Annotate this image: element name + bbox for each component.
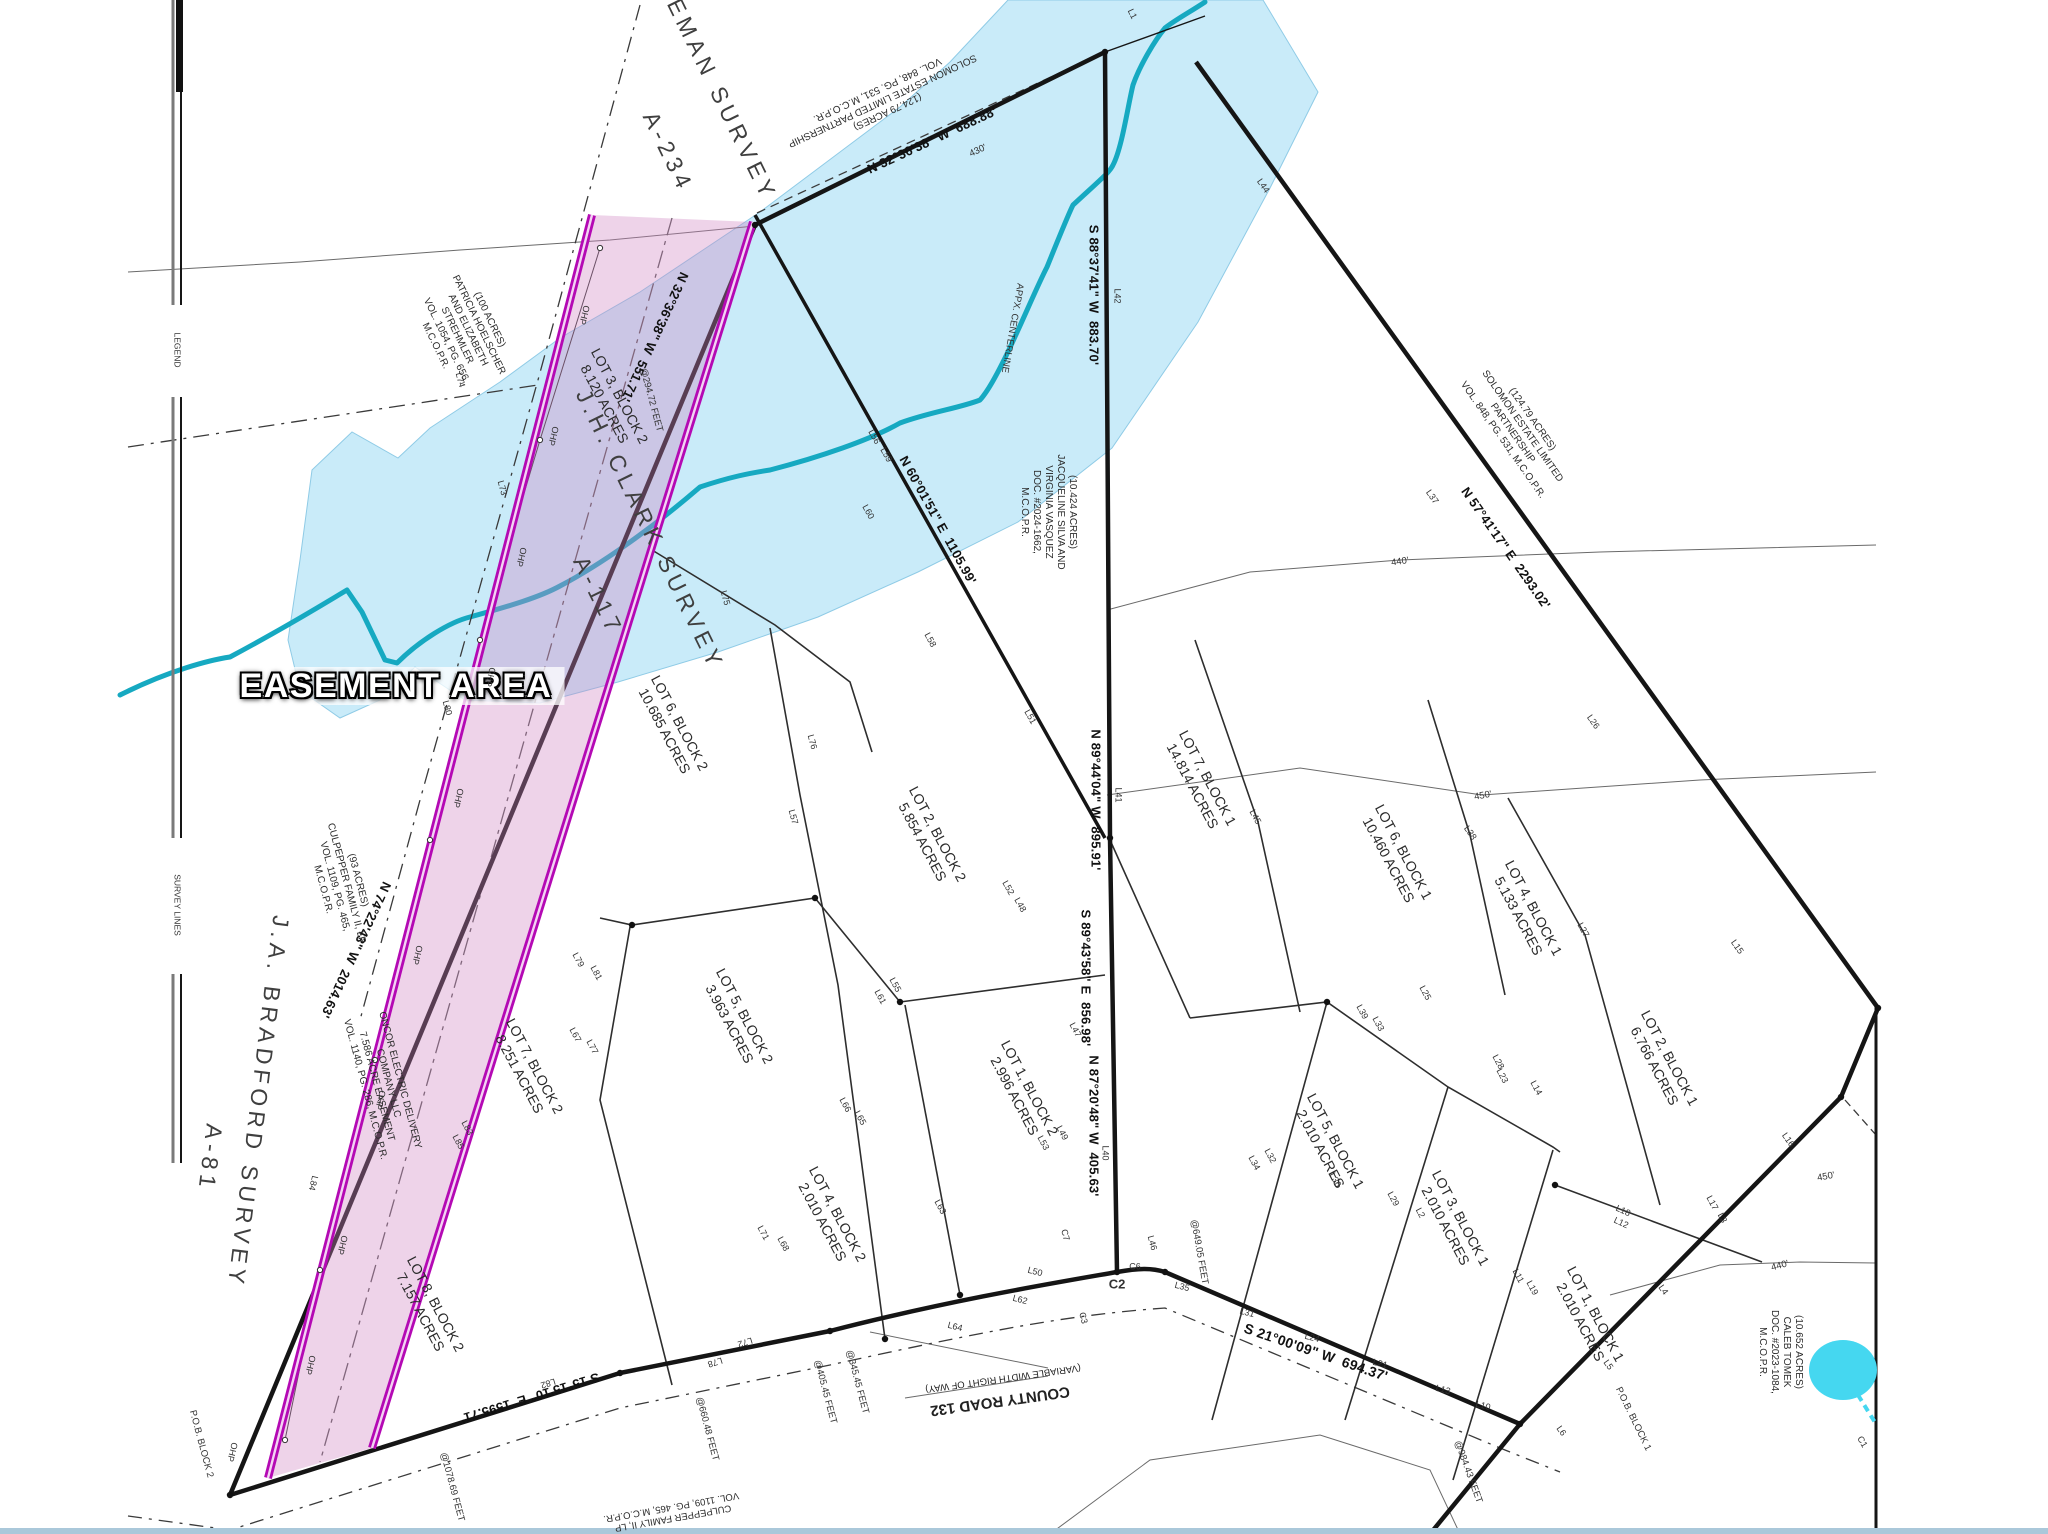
line-label: L34 bbox=[1246, 1154, 1261, 1171]
lot-label: LOT 6, BLOCK 110.460 ACRES bbox=[1356, 802, 1435, 911]
feet-label: @660.48 FEET bbox=[694, 1396, 720, 1462]
line-label: L85 bbox=[450, 1133, 465, 1150]
line-label: L19 bbox=[1524, 1279, 1539, 1296]
ohp-label: OHP bbox=[335, 1234, 348, 1255]
lot-label: LOT 7, BLOCK 28.251 ACRES bbox=[487, 1016, 566, 1125]
feet-label: @649.05 FEET bbox=[1189, 1219, 1210, 1285]
owner-label-line: M.C.O.P.R. bbox=[1018, 454, 1030, 569]
line-label: L23 bbox=[1494, 1067, 1509, 1084]
line-label: C3 bbox=[1077, 1311, 1089, 1324]
survey-plat-map: EASEMENT AREALEMAN SURVEYA-234J.H. CLARK… bbox=[0, 0, 2048, 1534]
line-label: L76 bbox=[806, 734, 819, 751]
contour-label: 430' bbox=[968, 143, 988, 159]
owner-label: (124.79 ACRES)SOLOMON ESTATE LIMITED PAR… bbox=[781, 40, 983, 160]
owner-label: (10.652 ACRES)CALEB TOMEKDOC. #2023-1084… bbox=[1756, 1310, 1804, 1394]
contour-label: 440' bbox=[1391, 556, 1410, 568]
line-label: L56 bbox=[866, 428, 881, 446]
line-label: L44 bbox=[1255, 177, 1271, 194]
owner-label: (124.79 ACRES)SOLOMON ESTATE LIMITEDPART… bbox=[1457, 359, 1577, 501]
lot-label: LOT 4, BLOCK 15.133 ACRES bbox=[1486, 858, 1565, 967]
bearing-label: S 21°00'09" W 694.37' bbox=[1242, 1321, 1389, 1383]
line-label: L81 bbox=[588, 964, 603, 981]
survey-name-clark: J.H. CLARK SURVEY bbox=[572, 386, 728, 674]
line-label: L37 bbox=[1424, 488, 1440, 505]
owner-label-line: VIRGINIA VASQUEZ bbox=[1042, 454, 1054, 569]
line-label: L71 bbox=[755, 1224, 770, 1241]
line-label: L67 bbox=[567, 1026, 582, 1043]
contour-label: 450' bbox=[1473, 790, 1492, 802]
pob-block2-label: P.O.B. BLOCK 2 bbox=[187, 1409, 214, 1479]
feet-label: @1078.69 FEET bbox=[438, 1452, 466, 1523]
legend-edge-label: LEGEND bbox=[173, 333, 182, 368]
line-label: L51 bbox=[1022, 708, 1037, 726]
line-label: L32 bbox=[1262, 1147, 1277, 1164]
survey-name-bradford: J.A. BRADFORD SURVEY bbox=[224, 914, 293, 1290]
lot-label: LOT 2, BLOCK 25.854 ACRES bbox=[890, 784, 969, 893]
ohp-label: OHP bbox=[225, 1441, 238, 1462]
line-label: L61 bbox=[872, 988, 887, 1005]
bearing-label: N 87°20'48" W 405.63' bbox=[1088, 1055, 1101, 1196]
owner-label-line: DOC. #2024-1662, bbox=[1030, 454, 1042, 569]
owner-label-line: JACQUELINE SILVA AND bbox=[1054, 454, 1066, 569]
ohp-label: OHP bbox=[410, 944, 423, 965]
line-label: L50 bbox=[1027, 1266, 1044, 1279]
line-label: L75 bbox=[719, 590, 732, 607]
contour-label: 450' bbox=[1816, 1171, 1835, 1183]
line-label: L48 bbox=[1012, 896, 1027, 914]
line-label: L29 bbox=[1385, 1190, 1400, 1207]
line-label: L25 bbox=[1417, 984, 1432, 1001]
line-label: L27 bbox=[1575, 921, 1590, 938]
line-label: C6 bbox=[1129, 1263, 1141, 1272]
feet-label: @984.43 FEET bbox=[1452, 1440, 1483, 1505]
line-label: L38 bbox=[1462, 824, 1478, 841]
map-labels-layer: EASEMENT AREALEMAN SURVEYA-234J.H. CLARK… bbox=[0, 0, 2048, 1534]
lot-label: LOT 8, BLOCK 27.157 ACRES bbox=[388, 1254, 467, 1363]
line-label: L14 bbox=[1528, 1079, 1543, 1096]
owner-label-line: (10.652 ACRES) bbox=[1792, 1310, 1804, 1394]
line-label: L26 bbox=[1585, 713, 1601, 730]
line-label: L2 bbox=[1414, 1206, 1427, 1219]
line-label: L64 bbox=[947, 1321, 964, 1334]
line-label: C2 bbox=[1109, 1278, 1126, 1291]
line-label: L63 bbox=[932, 1198, 947, 1215]
line-label: L6 bbox=[1554, 1424, 1567, 1437]
line-label: L10 bbox=[1475, 1400, 1492, 1413]
bearing-label: S 15°15'10" E 1595.71' bbox=[459, 1371, 601, 1426]
line-label: L65 bbox=[852, 1109, 867, 1126]
owner-label-line: CALEB TOMEK bbox=[1780, 1310, 1792, 1394]
line-label: L17 bbox=[1704, 1194, 1719, 1211]
line-label: L66 bbox=[837, 1096, 852, 1113]
feet-label: @345.45 FEET bbox=[844, 1349, 870, 1415]
bearing-label: N 32°36'38" W 551.71' bbox=[619, 270, 690, 403]
owner-label-line: DOC. #2023-1084, bbox=[1768, 1310, 1780, 1394]
lot-label: LOT 4, BLOCK 22.010 ACRES bbox=[790, 1164, 869, 1273]
feet-label: @405.45 FEET bbox=[812, 1359, 838, 1425]
ohp-label: OHP bbox=[514, 546, 527, 567]
owner-label: (100 ACRES)PATRICIA HOELSCHERAND ELIZABE… bbox=[406, 268, 519, 398]
owner-label-line: (10.424 ACRES) bbox=[1066, 454, 1078, 569]
lot-label: LOT 6, BLOCK 210.685 ACRES bbox=[632, 673, 711, 782]
survey-abstract-leman: A-234 bbox=[639, 108, 698, 196]
line-label: L42 bbox=[1113, 288, 1122, 303]
line-label: L79 bbox=[570, 951, 585, 968]
oncor-easement-label: ONCOR ELECTRIC DELIVERYCOMPANY LLC7.586 … bbox=[340, 1009, 424, 1161]
line-label: L15 bbox=[1729, 938, 1745, 955]
line-label: L16 bbox=[1780, 1131, 1796, 1148]
line-label: L1 bbox=[1126, 8, 1138, 21]
line-label: L83 bbox=[459, 1119, 474, 1136]
easement-area-title: EASEMENT AREA bbox=[228, 667, 565, 705]
survey-abstract-clark: A-117 bbox=[569, 553, 627, 639]
ohp-label: OHP bbox=[451, 787, 464, 808]
bearing-label: N 89°44'04" W 895.91' bbox=[1090, 729, 1103, 870]
line-label: L52 bbox=[1000, 879, 1015, 897]
line-label: L72 bbox=[736, 1335, 753, 1348]
lot-label: LOT 5, BLOCK 23.963 ACRES bbox=[697, 966, 776, 1075]
line-label: L62 bbox=[1012, 1294, 1029, 1307]
line-label: L58 bbox=[922, 631, 937, 648]
ohp-label: OHP bbox=[546, 425, 559, 446]
line-label: L73 bbox=[496, 480, 509, 497]
line-label: L59 bbox=[878, 446, 893, 464]
owner-label: (10.424 ACRES)JACQUELINE SILVA ANDVIRGIN… bbox=[1018, 454, 1078, 569]
line-label: L41 bbox=[1114, 787, 1123, 802]
line-label: L78 bbox=[706, 1355, 723, 1368]
line-label: L39 bbox=[1354, 1003, 1369, 1020]
pob-block1-label: P.O.B. BLOCK 1 bbox=[1613, 1386, 1652, 1453]
lot-label: LOT 3, BLOCK 12.010 ACRES bbox=[1413, 1168, 1492, 1277]
survey-abstract-bradford: A-81 bbox=[194, 1123, 225, 1194]
line-label: L35 bbox=[1174, 1281, 1191, 1294]
owner-label: (93 ACRES)CULPEPPER FAMILY II, LPVOL. 11… bbox=[301, 819, 379, 951]
creek-centerline-label: APPX. CENTERLINE bbox=[999, 282, 1024, 373]
lot-label: LOT 1, BLOCK 12.010 ACRES bbox=[1548, 1264, 1627, 1373]
line-label: L11 bbox=[1511, 1268, 1526, 1285]
line-label: L45 bbox=[1247, 808, 1262, 825]
line-label: L31 bbox=[1239, 1307, 1256, 1320]
bearing-label: N 57°41'17" E 2293.02' bbox=[1459, 485, 1553, 611]
line-label: L77 bbox=[584, 1038, 599, 1055]
line-label: L55 bbox=[887, 976, 902, 993]
line-label: L57 bbox=[787, 809, 800, 826]
line-label: L33 bbox=[1370, 1015, 1385, 1032]
line-label: C1 bbox=[1855, 1435, 1869, 1449]
lot-label: LOT 7, BLOCK 114.814 ACRES bbox=[1160, 728, 1239, 837]
line-label: L40 bbox=[1101, 1145, 1110, 1160]
lot-label: LOT 2, BLOCK 16.766 ACRES bbox=[1622, 1008, 1701, 1117]
lot-label: LOT 1, BLOCK 22.996 ACRES bbox=[982, 1038, 1061, 1147]
ohp-label: OHP bbox=[303, 1354, 316, 1375]
bearing-label: N 60°01'51" E 1105.99' bbox=[897, 454, 978, 587]
owner-label-line: M.C.O.P.R. bbox=[1756, 1310, 1768, 1394]
lot-label: LOT 5, BLOCK 12.010 ACRES bbox=[1288, 1091, 1367, 1200]
line-label: L60 bbox=[860, 503, 875, 521]
contour-label: 440' bbox=[1770, 1259, 1790, 1273]
bearing-label: S 88°37'41" W 883.70' bbox=[1088, 225, 1101, 365]
line-label: L13 bbox=[1435, 1384, 1452, 1397]
legend-edge-label: SURVEY LINES bbox=[173, 874, 182, 936]
line-label: C7 bbox=[1059, 1228, 1071, 1241]
owner-label: CULPEPPER FAMILY II, LPVOL. 1109, PG. 46… bbox=[602, 1489, 741, 1534]
ohp-label: OHP bbox=[577, 304, 590, 325]
line-label: L4 bbox=[1656, 1283, 1669, 1296]
line-label: L46 bbox=[1146, 1235, 1159, 1252]
line-label: L68 bbox=[775, 1235, 790, 1252]
bearing-label: S 89°43'58" E 856.98' bbox=[1080, 910, 1093, 1047]
line-label: L3 bbox=[1716, 1211, 1729, 1224]
line-label: L84 bbox=[307, 1175, 319, 1192]
